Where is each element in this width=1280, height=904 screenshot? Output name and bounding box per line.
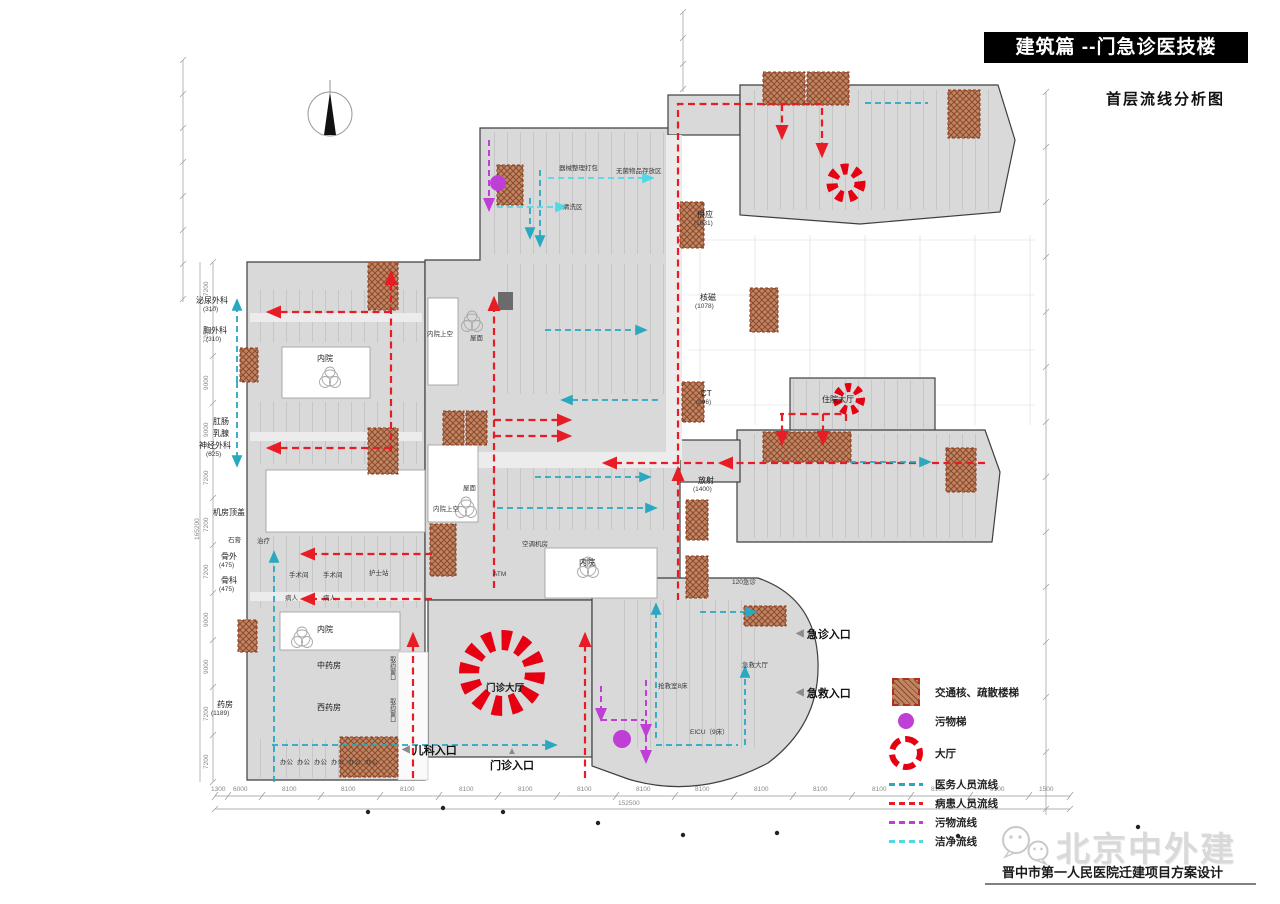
traffic-core-swatch [892,678,920,706]
north-compass-icon [308,80,352,136]
legend-symbol [888,802,924,805]
legend-label: 病患人员流线 [935,796,998,811]
flow-line-swatch [889,821,923,824]
flow-line-swatch [889,840,923,843]
project-name: 晋中市第一人民医院迁建项目方案设计 [1002,862,1223,881]
legend-label: 洁净流线 [935,834,977,849]
legend-label: 医务人员流线 [935,777,998,792]
dimension-total-bottom: 152500 [618,800,640,807]
legend-symbol [888,736,924,770]
flow-line-swatch [889,783,923,786]
legend-label: 交通核、疏散楼梯 [935,685,1019,700]
legend-symbol [888,678,924,706]
flow-line-swatch [889,802,923,805]
legend-symbol [888,783,924,786]
legend-label: 污物流线 [935,815,977,830]
legend-symbol [888,821,924,824]
legend-item: 大厅 [888,736,1019,770]
legend-label: 大厅 [935,746,956,761]
legend-label: 污物梯 [935,714,967,729]
legend-item: 交通核、疏散楼梯 [888,678,1019,706]
hall-icon [889,736,923,770]
footer-divider [985,883,1256,885]
legend-item: 污物梯 [888,713,1019,729]
legend-item: 病患人员流线 [888,796,1019,811]
floor-plan-svg [0,0,1280,904]
waste-elevator-icon [898,713,914,729]
drawing-subtitle: 首层流线分析图 [1106,88,1225,109]
legend-item: 医务人员流线 [888,777,1019,792]
legend-symbol [888,713,924,729]
page-title-banner: 建筑篇 --门急诊医技楼 [984,32,1248,63]
dimension-total-left: 165200 [194,518,201,540]
legend-symbol [888,840,924,843]
page: 泌尿外科(310)胸外科(310)肛肠乳腺神经外科(625)机房顶盖骨外(475… [0,0,1280,904]
